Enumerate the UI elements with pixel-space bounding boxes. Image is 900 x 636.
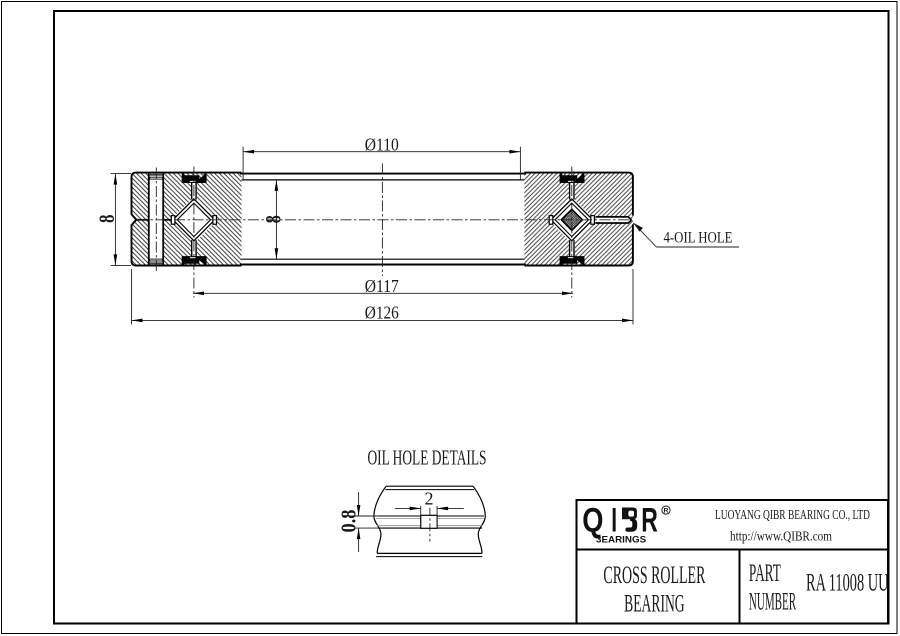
svg-text:4-OIL HOLE: 4-OIL HOLE (664, 230, 733, 247)
svg-text:LUOYANG QIBR BEARING CO., LTD: LUOYANG QIBR BEARING CO., LTD (715, 507, 870, 522)
svg-text:0.8: 0.8 (337, 510, 361, 533)
svg-text:NUMBER: NUMBER (749, 586, 796, 615)
svg-text:3EARINGS: 3EARINGS (596, 534, 646, 544)
svg-text:RA 11008 UU: RA 11008 UU (806, 567, 889, 596)
svg-text:Ø126: Ø126 (365, 302, 399, 322)
svg-text:8: 8 (261, 215, 286, 223)
svg-text:8: 8 (94, 215, 119, 224)
svg-text:CROSS ROLLER: CROSS ROLLER (603, 560, 705, 589)
svg-text:BEARING: BEARING (624, 588, 685, 617)
svg-text:http://www.QIBR.com: http://www.QIBR.com (730, 529, 832, 544)
svg-text:R: R (664, 508, 669, 515)
svg-text:Ø117: Ø117 (365, 276, 399, 296)
svg-text:PART: PART (749, 558, 781, 587)
svg-text:2: 2 (425, 489, 434, 509)
svg-text:OIL HOLE DETAILS: OIL HOLE DETAILS (368, 445, 487, 469)
svg-text:Ø110: Ø110 (365, 135, 399, 155)
